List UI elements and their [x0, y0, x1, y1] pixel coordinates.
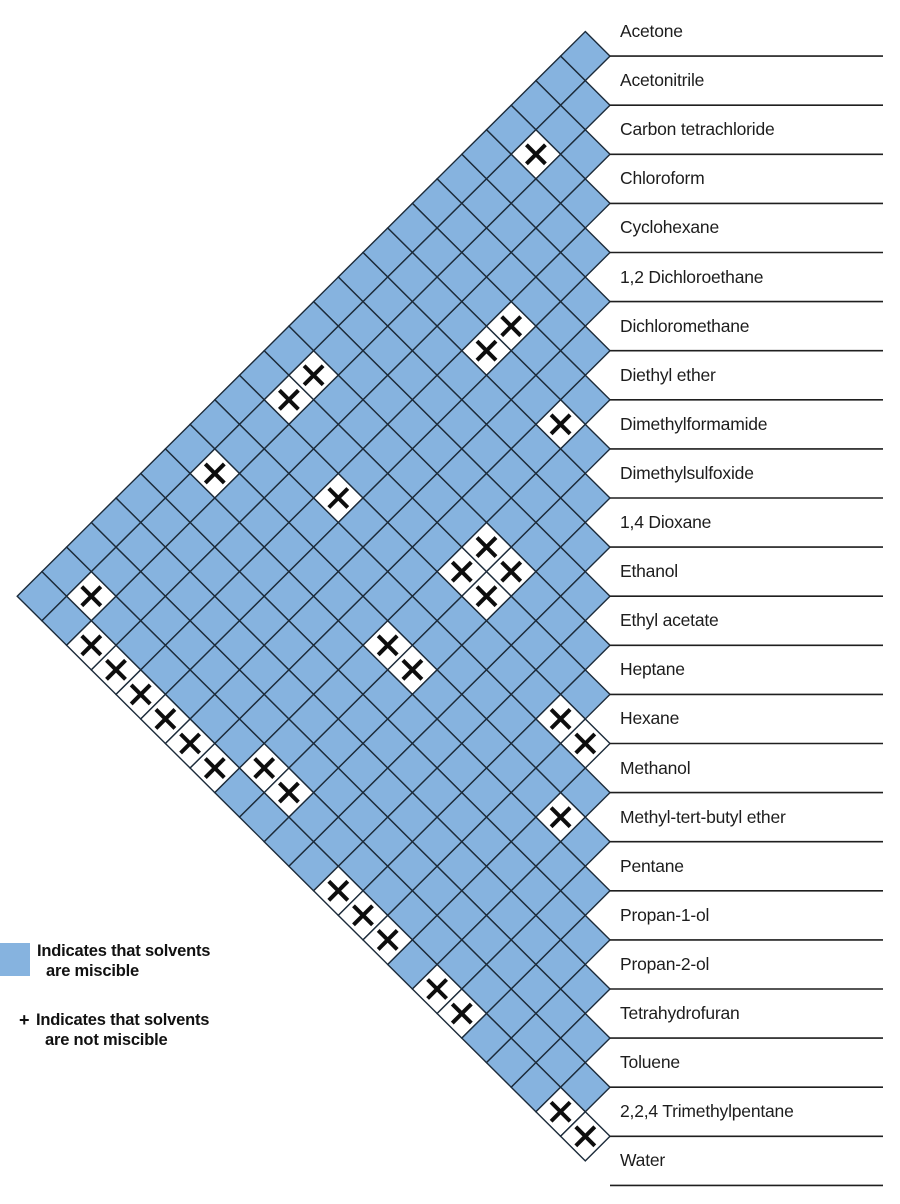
legend-miscible-text: Indicates that solvents are miscible	[37, 942, 210, 981]
solvent-label: Heptane	[620, 645, 883, 694]
solvent-label: Cyclohexane	[620, 203, 883, 252]
legend-immiscible-line2: are not miscible	[36, 1031, 209, 1051]
solvent-label: Propan-2-ol	[620, 940, 883, 989]
miscible-swatch-icon	[0, 943, 30, 976]
legend-immiscible-text: Indicates that solvents are not miscible	[36, 1011, 209, 1050]
solvent-label: Ethanol	[620, 547, 883, 596]
legend-immiscible-line1: Indicates that solvents	[36, 1011, 209, 1031]
legend-miscible-line1: Indicates that solvents	[37, 942, 210, 962]
solvent-miscibility-chart: AcetoneAcetonitrileCarbon tetrachlorideC…	[0, 0, 900, 1204]
solvent-label: Hexane	[620, 694, 883, 743]
solvent-label: Dichloromethane	[620, 302, 883, 351]
solvent-label: Methanol	[620, 744, 883, 793]
solvent-label: Toluene	[620, 1038, 883, 1087]
solvent-label: Diethyl ether	[620, 351, 883, 400]
solvent-label: 1,2 Dichloroethane	[620, 253, 883, 302]
solvent-label: Methyl-tert-butyl ether	[620, 793, 883, 842]
solvent-label: Propan-1-ol	[620, 891, 883, 940]
solvent-label: Chloroform	[620, 154, 883, 203]
solvent-label: Acetone	[620, 7, 883, 56]
legend-miscible: Indicates that solvents are miscible	[0, 942, 300, 981]
solvent-label: Tetrahydrofuran	[620, 989, 883, 1038]
solvent-label: Dimethylformamide	[620, 400, 883, 449]
solvent-label: Carbon tetrachloride	[620, 105, 883, 154]
solvent-label: Acetonitrile	[620, 56, 883, 105]
solvent-label: Dimethylsulfoxide	[620, 449, 883, 498]
solvent-label: Ethyl acetate	[620, 596, 883, 645]
solvent-label: Water	[620, 1136, 883, 1185]
legend-immiscible: + Indicates that solvents are not miscib…	[0, 1011, 300, 1050]
solvent-label: Pentane	[620, 842, 883, 891]
legend-miscible-line2: are miscible	[37, 962, 210, 982]
solvent-label: 2,2,4 Trimethylpentane	[620, 1087, 883, 1136]
solvent-label: 1,4 Dioxane	[620, 498, 883, 547]
plus-icon: +	[19, 1011, 32, 1030]
